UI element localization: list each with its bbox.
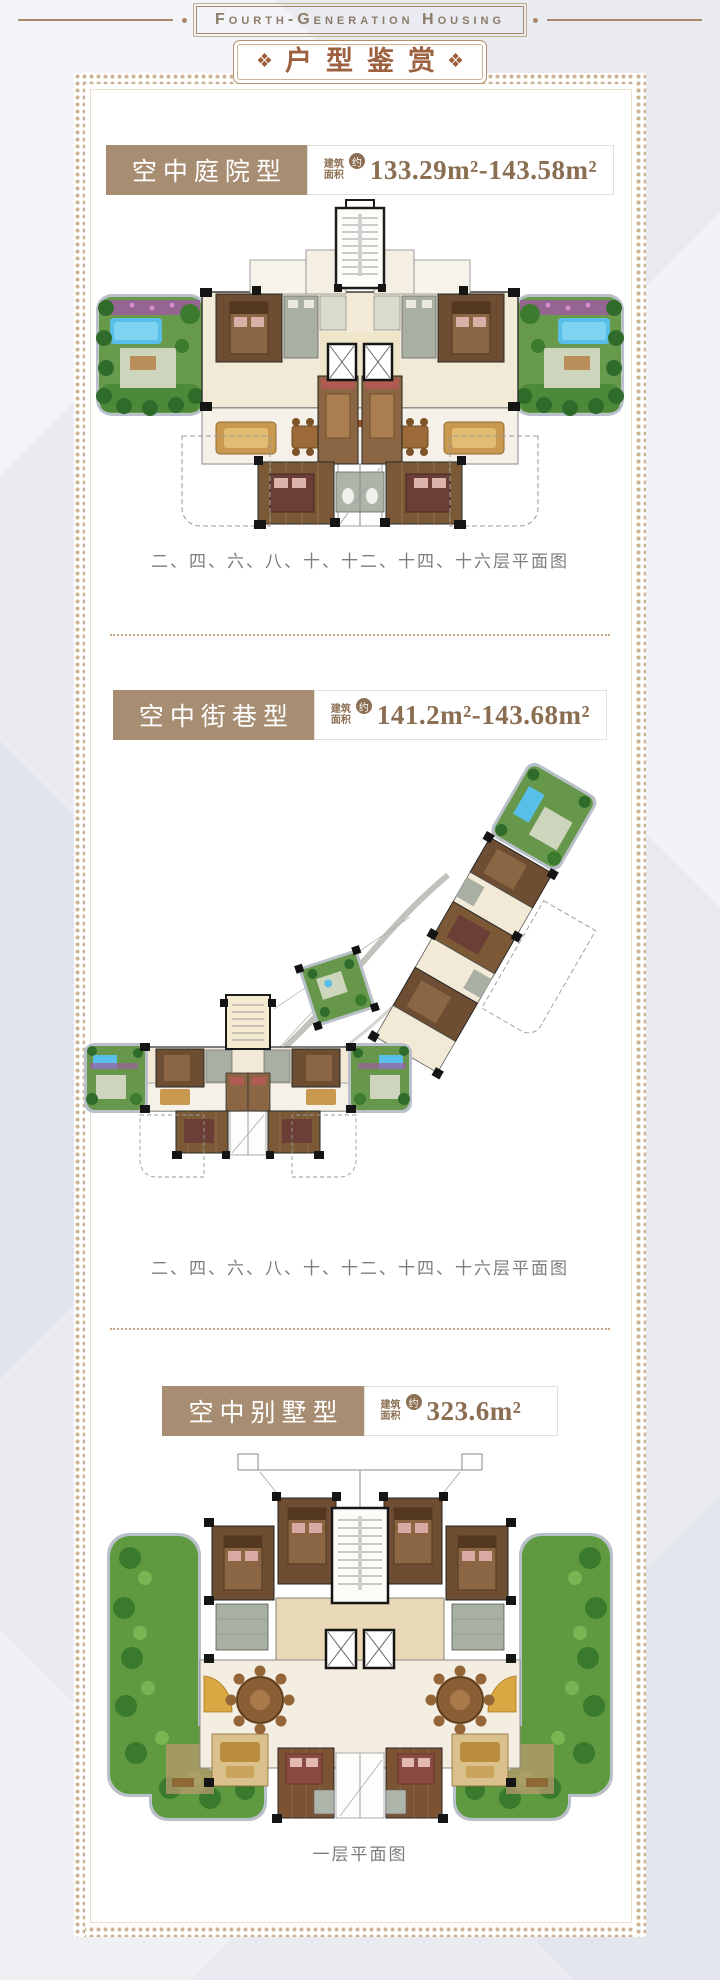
- section-title: 空中街巷型: [139, 697, 294, 733]
- eyebrow-text: Fourth-Generation Housing: [215, 11, 505, 28]
- floor-plan-sky-courtyard: [90, 196, 630, 536]
- approx-badge: 约: [349, 153, 365, 169]
- section-title-badge: 空中庭院型: [106, 145, 307, 195]
- area-box: 建筑面积 约 141.2m²-143.68m²: [314, 690, 607, 740]
- floor-plan-sky-street: [80, 747, 640, 1220]
- page-title-box: ❖ 户型鉴赏 ❖: [233, 40, 487, 84]
- knot-icon: ❖: [447, 52, 464, 71]
- area-label: 建筑面积: [324, 159, 344, 181]
- section-title-badge: 空中别墅型: [162, 1386, 363, 1436]
- plan-caption: 二、四、六、八、十、十二、十四、十六层平面图: [0, 1254, 720, 1279]
- area-value: 141.2m²-143.68m²: [377, 700, 590, 731]
- page-title: 户型鉴赏: [285, 47, 449, 77]
- knot-icon: ❖: [256, 52, 273, 71]
- divider-line: [547, 19, 702, 21]
- floor-plan-sky-villa: [100, 1448, 620, 1828]
- area-label: 建筑面积: [381, 1400, 401, 1422]
- area-value: 323.6m²: [427, 1396, 522, 1427]
- divider-line: [18, 19, 173, 21]
- dot-ornament: [182, 18, 187, 23]
- dot-ornament: [533, 18, 538, 23]
- section-title: 空中庭院型: [132, 152, 287, 188]
- plan-caption: 二、四、六、八、十、十二、十四、十六层平面图: [0, 547, 720, 572]
- eyebrow-box: Fourth-Generation Housing: [196, 6, 524, 34]
- section-title-badge: 空中街巷型: [113, 690, 314, 740]
- section-title: 空中别墅型: [188, 1393, 343, 1429]
- section-divider: [110, 634, 610, 636]
- approx-badge: 约: [356, 698, 372, 714]
- plan-caption: 一层平面图: [0, 1840, 720, 1865]
- section-divider: [110, 1328, 610, 1330]
- page-title-wrap: ❖ 户型鉴赏 ❖: [0, 40, 720, 84]
- area-value: 133.29m²-143.58m²: [370, 155, 597, 186]
- area-box: 建筑面积 约 323.6m²: [364, 1386, 558, 1436]
- area-box: 建筑面积 约 133.29m²-143.58m²: [307, 145, 614, 195]
- approx-badge: 约: [406, 1394, 422, 1410]
- poster-page: { "page": { "eyebrow": "Fourth-Generatio…: [0, 0, 720, 1980]
- frame-border-bottom: [74, 1926, 646, 1937]
- section-header-sky-villa: 空中别墅型 建筑面积 约 323.6m²: [0, 1386, 720, 1436]
- eyebrow-banner: Fourth-Generation Housing: [0, 6, 720, 34]
- section-header-sky-street: 空中街巷型 建筑面积 约 141.2m²-143.68m²: [0, 690, 720, 740]
- area-label: 建筑面积: [331, 704, 351, 726]
- section-header-sky-courtyard: 空中庭院型 建筑面积 约 133.29m²-143.58m²: [0, 145, 720, 195]
